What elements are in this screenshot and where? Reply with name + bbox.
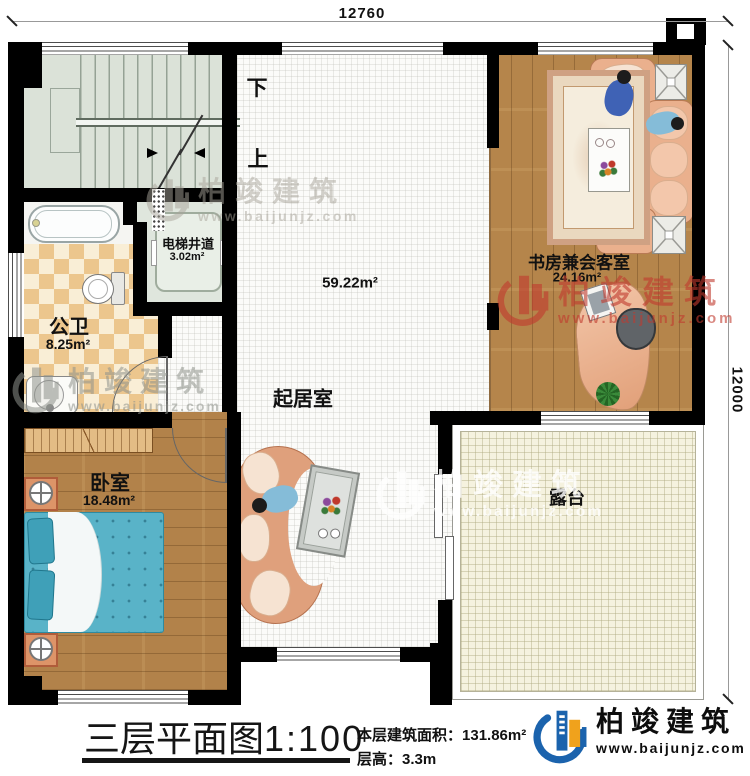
plan-title: 三层平面图1:100 bbox=[84, 710, 364, 762]
window bbox=[277, 647, 400, 662]
bathroom-door-leaf bbox=[166, 356, 168, 412]
side-table bbox=[655, 64, 687, 100]
window bbox=[42, 42, 188, 55]
toilet-bowl-inner bbox=[88, 279, 108, 299]
sliding-door-panel bbox=[434, 474, 443, 538]
floor-height-label: 层高： bbox=[357, 751, 402, 768]
stair-direction-arrow-icon bbox=[194, 148, 205, 158]
bedroom-area: 18.48m² bbox=[83, 492, 135, 508]
sliding-door-panel bbox=[445, 536, 454, 600]
side-table bbox=[652, 216, 686, 254]
flower-bouquet-icon bbox=[316, 489, 348, 521]
side-table-x-icon bbox=[656, 65, 686, 99]
window bbox=[541, 411, 649, 425]
wardrobe bbox=[24, 428, 153, 453]
cup-icon bbox=[317, 528, 329, 540]
sofa-cushion bbox=[238, 514, 270, 562]
wall bbox=[8, 690, 58, 705]
floor-height-line: 层高：3.3m bbox=[357, 748, 436, 769]
wall bbox=[133, 302, 237, 316]
bathroom-area: 8.25m² bbox=[46, 336, 90, 352]
study-area: 24.16m² bbox=[553, 270, 601, 285]
cup-icon bbox=[606, 139, 615, 148]
brand-name: 柏竣建筑 bbox=[596, 707, 746, 738]
wall bbox=[692, 42, 705, 411]
wall bbox=[133, 222, 147, 302]
bedroom-door-leaf bbox=[225, 428, 227, 483]
terrace-label: 露台 bbox=[549, 484, 585, 510]
wall bbox=[222, 55, 237, 412]
wall bbox=[487, 55, 499, 148]
pillow bbox=[27, 569, 56, 620]
cup-icon bbox=[329, 528, 341, 540]
side-table-x-icon bbox=[653, 217, 685, 253]
living-room-label: 起居室 bbox=[273, 383, 333, 412]
stair-stringer bbox=[76, 118, 240, 127]
sink-tap-icon bbox=[46, 404, 54, 412]
person-head bbox=[617, 70, 631, 84]
top-dimension-label: 12760 bbox=[339, 5, 386, 22]
wall bbox=[8, 412, 172, 428]
wall bbox=[230, 647, 277, 662]
chimney-flue bbox=[677, 24, 694, 39]
stair-up-label: 上 bbox=[248, 143, 269, 173]
wall bbox=[443, 42, 538, 55]
window bbox=[8, 253, 24, 337]
window bbox=[282, 42, 443, 55]
nightstand-lamp-icon bbox=[29, 637, 53, 661]
wall bbox=[188, 42, 282, 55]
nightstand-lamp-icon bbox=[29, 481, 53, 505]
floor-area-value: 131.86m² bbox=[462, 727, 526, 744]
table-top bbox=[303, 471, 353, 550]
elevator-label: 电梯井道 bbox=[162, 234, 214, 253]
floor-area-line: 本层建筑面积：131.86m² bbox=[357, 724, 526, 745]
stair-treads-upper bbox=[80, 55, 237, 118]
brand-block: 柏竣建筑 www.baijunjz.com bbox=[596, 707, 746, 756]
floor-area-label: 本层建筑面积： bbox=[357, 727, 462, 744]
right-dimension-label: 12000 bbox=[729, 367, 746, 414]
flower-bouquet-icon bbox=[595, 155, 621, 181]
wall bbox=[487, 303, 499, 330]
sofa-cushion bbox=[650, 180, 688, 216]
wall bbox=[158, 316, 172, 358]
window bbox=[58, 690, 188, 705]
floor-plan-canvas: 下 上 电梯井道 3.02m² 公卫 8.25m² 59.22m² 起居室 书房… bbox=[0, 0, 750, 776]
wall bbox=[430, 411, 541, 425]
wall bbox=[188, 690, 240, 705]
wall bbox=[430, 643, 452, 705]
title-underline bbox=[82, 758, 350, 763]
bathtub-inner bbox=[34, 210, 112, 238]
wall bbox=[123, 198, 137, 225]
study-floor-edge bbox=[489, 148, 491, 303]
window bbox=[538, 42, 653, 55]
office-chair bbox=[616, 308, 656, 350]
person-head bbox=[671, 117, 684, 130]
monitor-screen bbox=[587, 290, 610, 315]
plan-title-text: 三层平面图 bbox=[84, 718, 264, 759]
bed-sheet bbox=[48, 512, 102, 632]
pillow bbox=[27, 517, 55, 564]
study-floor-edge bbox=[489, 330, 491, 411]
elevator-guide-rail bbox=[151, 240, 157, 266]
stair-treads-lower bbox=[80, 127, 237, 188]
floor-height-value: 3.3m bbox=[402, 751, 436, 768]
study-coffee-table bbox=[588, 128, 630, 192]
wall bbox=[649, 411, 705, 425]
stair-down-label: 下 bbox=[247, 72, 268, 102]
wall bbox=[8, 337, 24, 690]
potted-plant-icon bbox=[596, 382, 620, 406]
person-head bbox=[252, 498, 267, 513]
brand-website: www.baijunjz.com bbox=[596, 740, 746, 756]
elevator-door-frame bbox=[152, 189, 165, 231]
plan-scale: 1:100 bbox=[264, 718, 364, 759]
wall bbox=[8, 42, 24, 253]
elevator-area: 3.02m² bbox=[170, 251, 205, 263]
terrace-floor bbox=[460, 431, 696, 692]
bathtub-faucet-icon bbox=[32, 219, 40, 227]
cup-icon bbox=[595, 138, 604, 147]
baijun-brand-logo-icon bbox=[533, 706, 591, 768]
sofa-cushion bbox=[650, 142, 688, 178]
living-room-area: 59.22m² bbox=[322, 275, 378, 292]
stair-direction-arrow-icon bbox=[147, 148, 158, 158]
